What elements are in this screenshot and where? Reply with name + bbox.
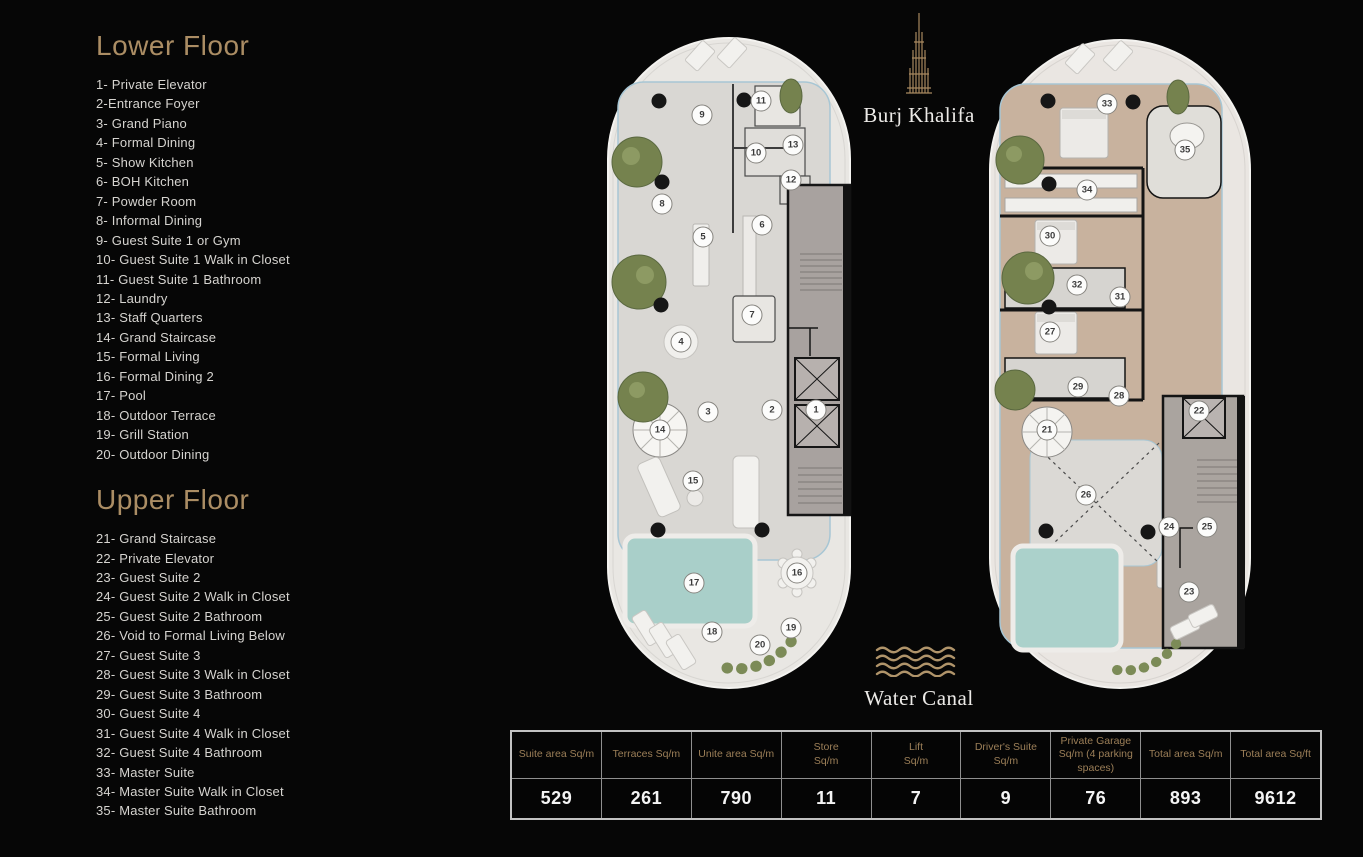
legend-item: 23- Guest Suite 2 [96,568,426,587]
spiral-staircase-icon [1022,407,1072,457]
legend-item: 11- Guest Suite 1 Bathroom [96,270,426,289]
legend-item: 2-Entrance Foyer [96,94,426,113]
bathtub-icon [1170,123,1204,149]
table-column: Private Garage Sq/m (4 parking spaces)76 [1050,732,1140,818]
table-value-cell: 11 [782,779,871,818]
water-canal-label: Water Canal [848,686,990,711]
upper-floor-plan [975,28,1265,696]
legend-item: 4- Formal Dining [96,133,426,152]
table-column: Total area Sq/m893 [1140,732,1230,818]
legend-item: 33- Master Suite [96,763,426,782]
legend-item: 12- Laundry [96,289,426,308]
table-column: Driver's Suite Sq/m9 [960,732,1050,818]
service-core [788,185,851,515]
legend-item: 5- Show Kitchen [96,153,426,172]
table-column: Total area Sq/ft9612 [1230,732,1320,818]
pool [1013,546,1121,650]
legend-item: 26- Void to Formal Living Below [96,626,426,645]
legend-item: 8- Informal Dining [96,211,426,230]
legend-item: 7- Powder Room [96,192,426,211]
legend-item: 31- Guest Suite 4 Walk in Closet [96,724,426,743]
water-canal-landmark: Water Canal [848,645,990,711]
table-header-cell: Store Sq/m [782,732,871,779]
legend-item: 19- Grill Station [96,425,426,444]
legend-item: 14- Grand Staircase [96,328,426,347]
table-header-cell: Private Garage Sq/m (4 parking spaces) [1051,732,1140,779]
table-value-cell: 9 [961,779,1050,818]
burj-khalifa-label: Burj Khalifa [848,103,990,128]
legend-item: 20- Outdoor Dining [96,445,426,464]
table-column: Store Sq/m11 [781,732,871,818]
upper-floor-title: Upper Floor [96,484,426,516]
legend-item: 24- Guest Suite 2 Walk in Closet [96,587,426,606]
legend-item: 22- Private Elevator [96,549,426,568]
legend-item: 10- Guest Suite 1 Walk in Closet [96,250,426,269]
legend-item: 32- Guest Suite 4 Bathroom [96,743,426,762]
lower-floor-plan [595,28,863,696]
table-value-cell: 261 [602,779,691,818]
legend-item: 30- Guest Suite 4 [96,704,426,723]
table-header-cell: Total area Sq/ft [1231,732,1320,779]
table-column: Lift Sq/m7 [871,732,961,818]
burj-khalifa-landmark: Burj Khalifa [848,12,990,128]
legend-item: 17- Pool [96,386,426,405]
legend-item: 6- BOH Kitchen [96,172,426,191]
burj-khalifa-icon [894,12,944,94]
legend-item: 27- Guest Suite 3 [96,646,426,665]
legend-item: 35- Master Suite Bathroom [96,801,426,820]
table-value-cell: 9612 [1231,779,1320,818]
table-value-cell: 76 [1051,779,1140,818]
legend-item: 21- Grand Staircase [96,529,426,548]
table-header-cell: Driver's Suite Sq/m [961,732,1050,779]
legend-item: 34- Master Suite Walk in Closet [96,782,426,801]
legend-item: 28- Guest Suite 3 Walk in Closet [96,665,426,684]
table-header-cell: Terraces Sq/m [602,732,691,779]
table-header-cell: Total area Sq/m [1141,732,1230,779]
legend-item: 16- Formal Dining 2 [96,367,426,386]
area-summary-table: Suite area Sq/m529Terraces Sq/m261Unite … [510,730,1322,820]
legend-item: 15- Formal Living [96,347,426,366]
legend-panel: Lower Floor 1- Private Elevator2-Entranc… [96,30,426,821]
table-value-cell: 893 [1141,779,1230,818]
lower-floor-list: 1- Private Elevator2-Entrance Foyer3- Gr… [96,75,426,464]
table-column: Terraces Sq/m261 [601,732,691,818]
legend-item: 9- Guest Suite 1 or Gym [96,231,426,250]
table-value-cell: 7 [872,779,961,818]
table-column: Unite area Sq/m790 [691,732,781,818]
table-header-cell: Lift Sq/m [872,732,961,779]
table-column: Suite area Sq/m529 [512,732,601,818]
legend-item: 1- Private Elevator [96,75,426,94]
legend-item: 3- Grand Piano [96,114,426,133]
legend-item: 29- Guest Suite 3 Bathroom [96,685,426,704]
water-canal-icon [874,645,964,677]
legend-item: 13- Staff Quarters [96,308,426,327]
table-value-cell: 529 [512,779,601,818]
upper-floor-list: 21- Grand Staircase22- Private Elevator2… [96,529,426,821]
lower-floor-title: Lower Floor [96,30,426,62]
legend-item: 25- Guest Suite 2 Bathroom [96,607,426,626]
table-header-cell: Suite area Sq/m [512,732,601,779]
table-header-cell: Unite area Sq/m [692,732,781,779]
legend-item: 18- Outdoor Terrace [96,406,426,425]
table-value-cell: 790 [692,779,781,818]
